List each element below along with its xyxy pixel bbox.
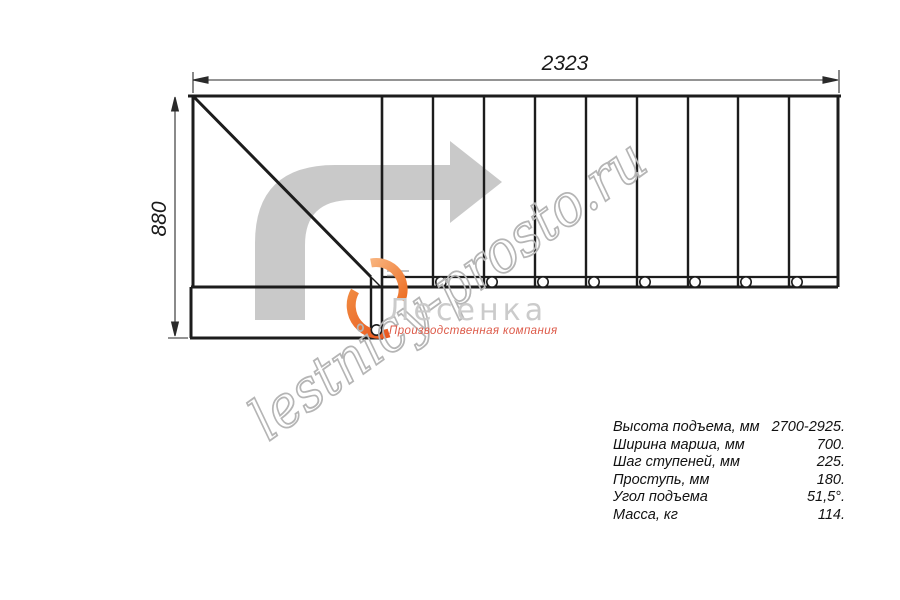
dim-arrow-down [172,322,179,336]
baluster-circle [589,277,599,287]
spec-table: Высота подъема, мм 2700-2925. Ширина мар… [613,419,845,524]
spec-value: 225. [817,454,845,472]
dimension-width-label: 2323 [530,52,600,76]
spec-value: 700. [817,437,845,455]
logo-tagline: Производственная компания [389,325,558,337]
dim-arrow-left [193,77,208,83]
spec-label: Проступь, мм [613,472,709,490]
spec-row: Масса, кг 114. [613,507,845,525]
spec-row: Проступь, мм 180. [613,472,845,490]
spec-label: Масса, кг [613,507,678,525]
baluster-circle [690,277,700,287]
spec-label: Высота подъема, мм [613,419,760,437]
spec-value: 2700-2925. [772,419,845,437]
spec-value: 114. [818,507,845,525]
spec-row: Шаг ступеней, мм 225. [613,454,845,472]
spec-label: Угол подъема [613,489,708,507]
spec-row: Ширина марша, мм 700. [613,437,845,455]
baluster-circle [792,277,802,287]
spec-label: Шаг ступеней, мм [613,454,740,472]
spec-row: Высота подъема, мм 2700-2925. [613,419,845,437]
dim-arrow-up [172,97,179,111]
baluster-circle [538,277,548,287]
spec-label: Ширина марша, мм [613,437,745,455]
baluster-circle [640,277,650,287]
dimension-height-label: 880 [148,184,172,254]
spec-row: Угол подъема 51,5°. [613,489,845,507]
spec-value: 51,5°. [807,489,845,507]
logo-wordmark: Лесенка [387,293,547,328]
dim-arrow-right [823,77,838,83]
baluster-circle [741,277,751,287]
spec-value: 180. [817,472,845,490]
staircase-drawing-canvas: lestnicy-prosto.ru 2323 880 Лесенка Прои… [0,0,900,600]
